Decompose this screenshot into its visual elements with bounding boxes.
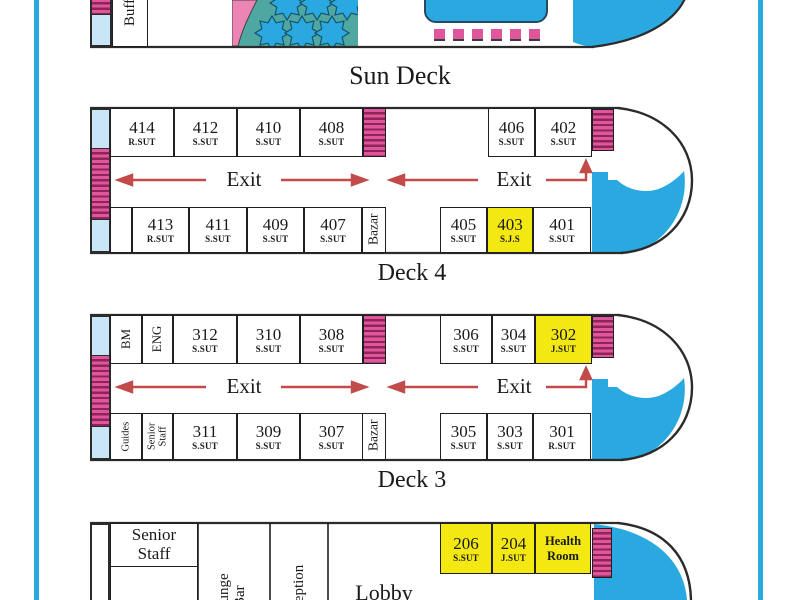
room-309: 309 S.SUT — [237, 413, 300, 460]
stairs — [363, 315, 386, 364]
room-number: 312 — [192, 326, 218, 343]
stern-deck-area — [92, 317, 109, 355]
stairs — [92, 355, 109, 427]
room-number: 305 — [451, 423, 477, 440]
room-type: S.SUT — [499, 138, 525, 147]
room-type: S.SUT — [256, 345, 282, 354]
room-type: S.SUT — [501, 345, 527, 354]
arrow-right-icon — [352, 175, 366, 185]
room-number: 412 — [193, 119, 219, 136]
deck-3-label: Deck 3 — [312, 467, 512, 494]
room-409: 409 S.SUT — [247, 207, 304, 253]
room-number: 302 — [551, 326, 577, 343]
room-410: 410 S.SUT — [237, 108, 300, 157]
room-408: 408 S.SUT — [300, 108, 363, 157]
stairs — [592, 528, 612, 578]
arrow-left-icon — [118, 382, 132, 392]
room-number: 410 — [256, 119, 282, 136]
deck2-stern-column — [90, 523, 110, 600]
room-number: 308 — [319, 326, 345, 343]
room-senior-staff: Senior Staff — [110, 523, 198, 567]
room-204-highlighted: 204 J.SUT — [492, 523, 535, 574]
deck-chair-icon — [529, 29, 540, 41]
room-type: R.SUT — [128, 138, 155, 147]
room-type: R.SUT — [147, 235, 174, 244]
room-number: 206 — [453, 535, 479, 552]
room-number: 402 — [551, 119, 577, 136]
stern-deck-area — [92, 15, 110, 45]
room-type: S.SUT — [320, 235, 346, 244]
room-308: 308 S.SUT — [300, 315, 363, 364]
eng-label: ENG — [150, 317, 164, 361]
room-411: 411 S.SUT — [189, 207, 247, 253]
room-206-highlighted: 206 S.SUT — [440, 523, 492, 574]
ship-deck-plan: Buffet Sun Deck 414 R.SUT 412 S.SUT 410 … — [0, 0, 800, 600]
guides-label: Guides — [120, 410, 131, 464]
bazar-label: Bazar — [367, 206, 382, 252]
stern-deck-area — [92, 110, 109, 148]
lounge-bar-label: Lounge Bar — [216, 572, 248, 600]
stairs — [92, 0, 110, 15]
room-312: 312 S.SUT — [173, 315, 237, 364]
room-402: 402 S.SUT — [535, 108, 592, 157]
room-blank — [110, 207, 132, 253]
frame-border-left — [34, 0, 39, 600]
room-number: 409 — [263, 216, 289, 233]
room-310: 310 S.SUT — [237, 315, 300, 364]
room-type: S.SUT — [497, 442, 523, 451]
room-311: 311 S.SUT — [173, 413, 237, 460]
room-number: 306 — [453, 326, 479, 343]
stairs — [592, 109, 614, 151]
room-type: S.SUT — [551, 138, 577, 147]
deck-chair-icon — [472, 29, 483, 41]
room-304: 304 S.SUT — [492, 315, 535, 364]
room-type: S.SUT — [319, 345, 345, 354]
room-405: 405 S.SUT — [440, 207, 487, 253]
room-413: 413 R.SUT — [132, 207, 189, 253]
room-412: 412 S.SUT — [174, 108, 237, 157]
room-401: 401 S.SUT — [533, 207, 591, 253]
room-type: J.SUT — [551, 345, 576, 354]
deck4-bow-water — [592, 171, 685, 253]
room-407: 407 S.SUT — [304, 207, 362, 253]
room-number: 405 — [451, 216, 477, 233]
room-type: S.SUT — [256, 442, 282, 451]
room-type: S.SUT — [319, 442, 345, 451]
deck-chair-icon — [453, 29, 464, 41]
room-type: S.SUT — [319, 138, 345, 147]
room-305: 305 S.SUT — [440, 413, 487, 460]
arrow-up-icon — [581, 161, 591, 172]
deck4-stern-column — [90, 108, 111, 253]
room-number: 411 — [206, 216, 231, 233]
room-type: S.SUT — [192, 442, 218, 451]
lobby-label: Lobby — [328, 580, 440, 600]
exit-label: Exit — [478, 374, 550, 399]
frame-border-right — [758, 0, 763, 600]
room-type: S.SUT — [192, 345, 218, 354]
room-406: 406 S.SUT — [488, 108, 535, 157]
room-type: S.SUT — [453, 554, 479, 563]
senior-staff-label: Senior Staff — [122, 526, 186, 563]
room-number: 413 — [148, 216, 174, 233]
room-type: R.SUT — [548, 442, 575, 451]
room-type: J.SUT — [501, 554, 526, 563]
deck3-bow-water — [592, 378, 685, 460]
room-type: S.SUT — [256, 138, 282, 147]
arrow-left-icon — [118, 175, 132, 185]
stairs — [592, 316, 614, 358]
sun-deck-label: Sun Deck — [300, 61, 500, 91]
room-number: 403 — [497, 216, 523, 233]
room-number: 309 — [256, 423, 282, 440]
room-type: S.SUT — [451, 235, 477, 244]
room-health-room: Health Room — [535, 523, 591, 574]
room-number: 307 — [319, 423, 345, 440]
room-type: S.SUT — [453, 345, 479, 354]
stairs — [363, 108, 386, 157]
room-302-highlighted: 302 J.SUT — [535, 315, 592, 364]
deck-chair-icon — [510, 29, 521, 41]
arrow-left-icon — [390, 382, 404, 392]
room-number: 407 — [320, 216, 346, 233]
deck-4-label: Deck 4 — [312, 260, 512, 287]
reception-label: Reception — [291, 550, 307, 600]
room-blank — [110, 566, 198, 600]
deck-chair-icon — [491, 29, 502, 41]
bm-label: BM — [119, 317, 133, 361]
room-number: 303 — [497, 423, 523, 440]
senior-staff-label: Senior Staff — [147, 418, 170, 454]
bazar-label: Bazar — [367, 412, 382, 458]
stern-deck-area — [92, 220, 109, 251]
arrow-up-icon — [581, 368, 591, 379]
room-403-highlighted: 403 S.J.S — [487, 207, 533, 253]
sun-deck-stern-column — [90, 0, 112, 47]
deck3-stern-column — [90, 315, 111, 460]
sun-deck-decor — [90, 0, 686, 50]
room-303: 303 S.SUT — [487, 413, 533, 460]
room-number: 311 — [193, 423, 218, 440]
room-number: 301 — [549, 423, 575, 440]
swimming-pool — [424, 0, 548, 23]
room-type: S.SUT — [205, 235, 231, 244]
buffet-label: Buffet — [122, 0, 138, 47]
stairs — [92, 148, 109, 220]
room-number: 204 — [501, 535, 527, 552]
room-number: 401 — [549, 216, 575, 233]
room-type: S.SUT — [451, 442, 477, 451]
arrow-right-icon — [352, 382, 366, 392]
room-301: 301 R.SUT — [533, 413, 591, 460]
room-414: 414 R.SUT — [110, 108, 174, 157]
room-number: 310 — [256, 326, 282, 343]
exit-label: Exit — [206, 374, 282, 399]
room-type: S.SUT — [549, 235, 575, 244]
room-type: S.SUT — [263, 235, 289, 244]
stern-deck-area — [92, 427, 109, 458]
health-room-label: Health Room — [540, 534, 586, 563]
room-number: 414 — [129, 119, 155, 136]
deck-chair-icon — [434, 29, 445, 41]
room-number: 408 — [319, 119, 345, 136]
room-307: 307 S.SUT — [300, 413, 363, 460]
room-type: S.J.S — [500, 235, 520, 244]
room-number: 304 — [501, 326, 527, 343]
exit-label: Exit — [478, 167, 550, 192]
room-number: 406 — [499, 119, 525, 136]
room-type: S.SUT — [193, 138, 219, 147]
room-306: 306 S.SUT — [440, 315, 492, 364]
arrow-left-icon — [390, 175, 404, 185]
exit-label: Exit — [206, 167, 282, 192]
